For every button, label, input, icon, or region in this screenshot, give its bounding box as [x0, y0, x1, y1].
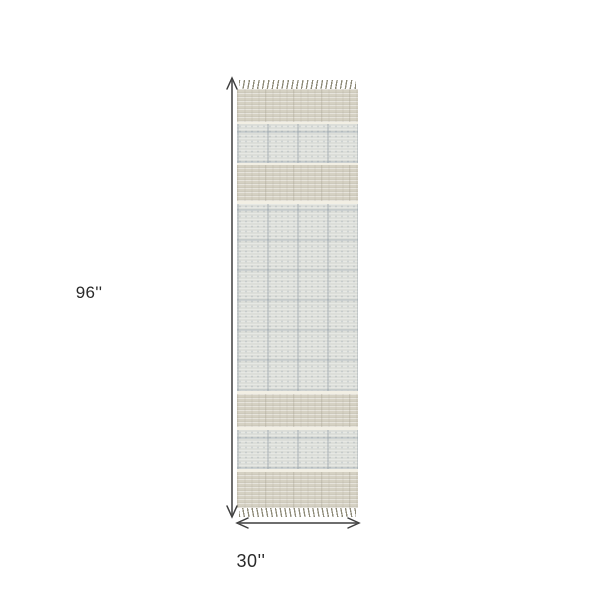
rug-fringe-top	[239, 80, 356, 89]
product-dimension-diagram: 96'' 30''	[0, 0, 600, 600]
rug-band-beige	[237, 165, 358, 201]
rug-bands	[237, 89, 358, 508]
rug-band-beige	[237, 472, 358, 508]
rug-product-image	[237, 80, 358, 517]
height-label: 96''	[66, 283, 112, 303]
width-label: 30''	[227, 551, 275, 572]
width-dimension-arrow	[237, 518, 359, 528]
height-dimension-arrow	[227, 78, 237, 517]
rug-band-beige	[237, 89, 358, 122]
rug-band-grid	[237, 124, 358, 163]
rug-band-beige	[237, 394, 358, 427]
rug-band-grid	[237, 204, 358, 391]
rug-band-grid	[237, 430, 358, 469]
rug-fringe-bottom	[239, 508, 356, 517]
